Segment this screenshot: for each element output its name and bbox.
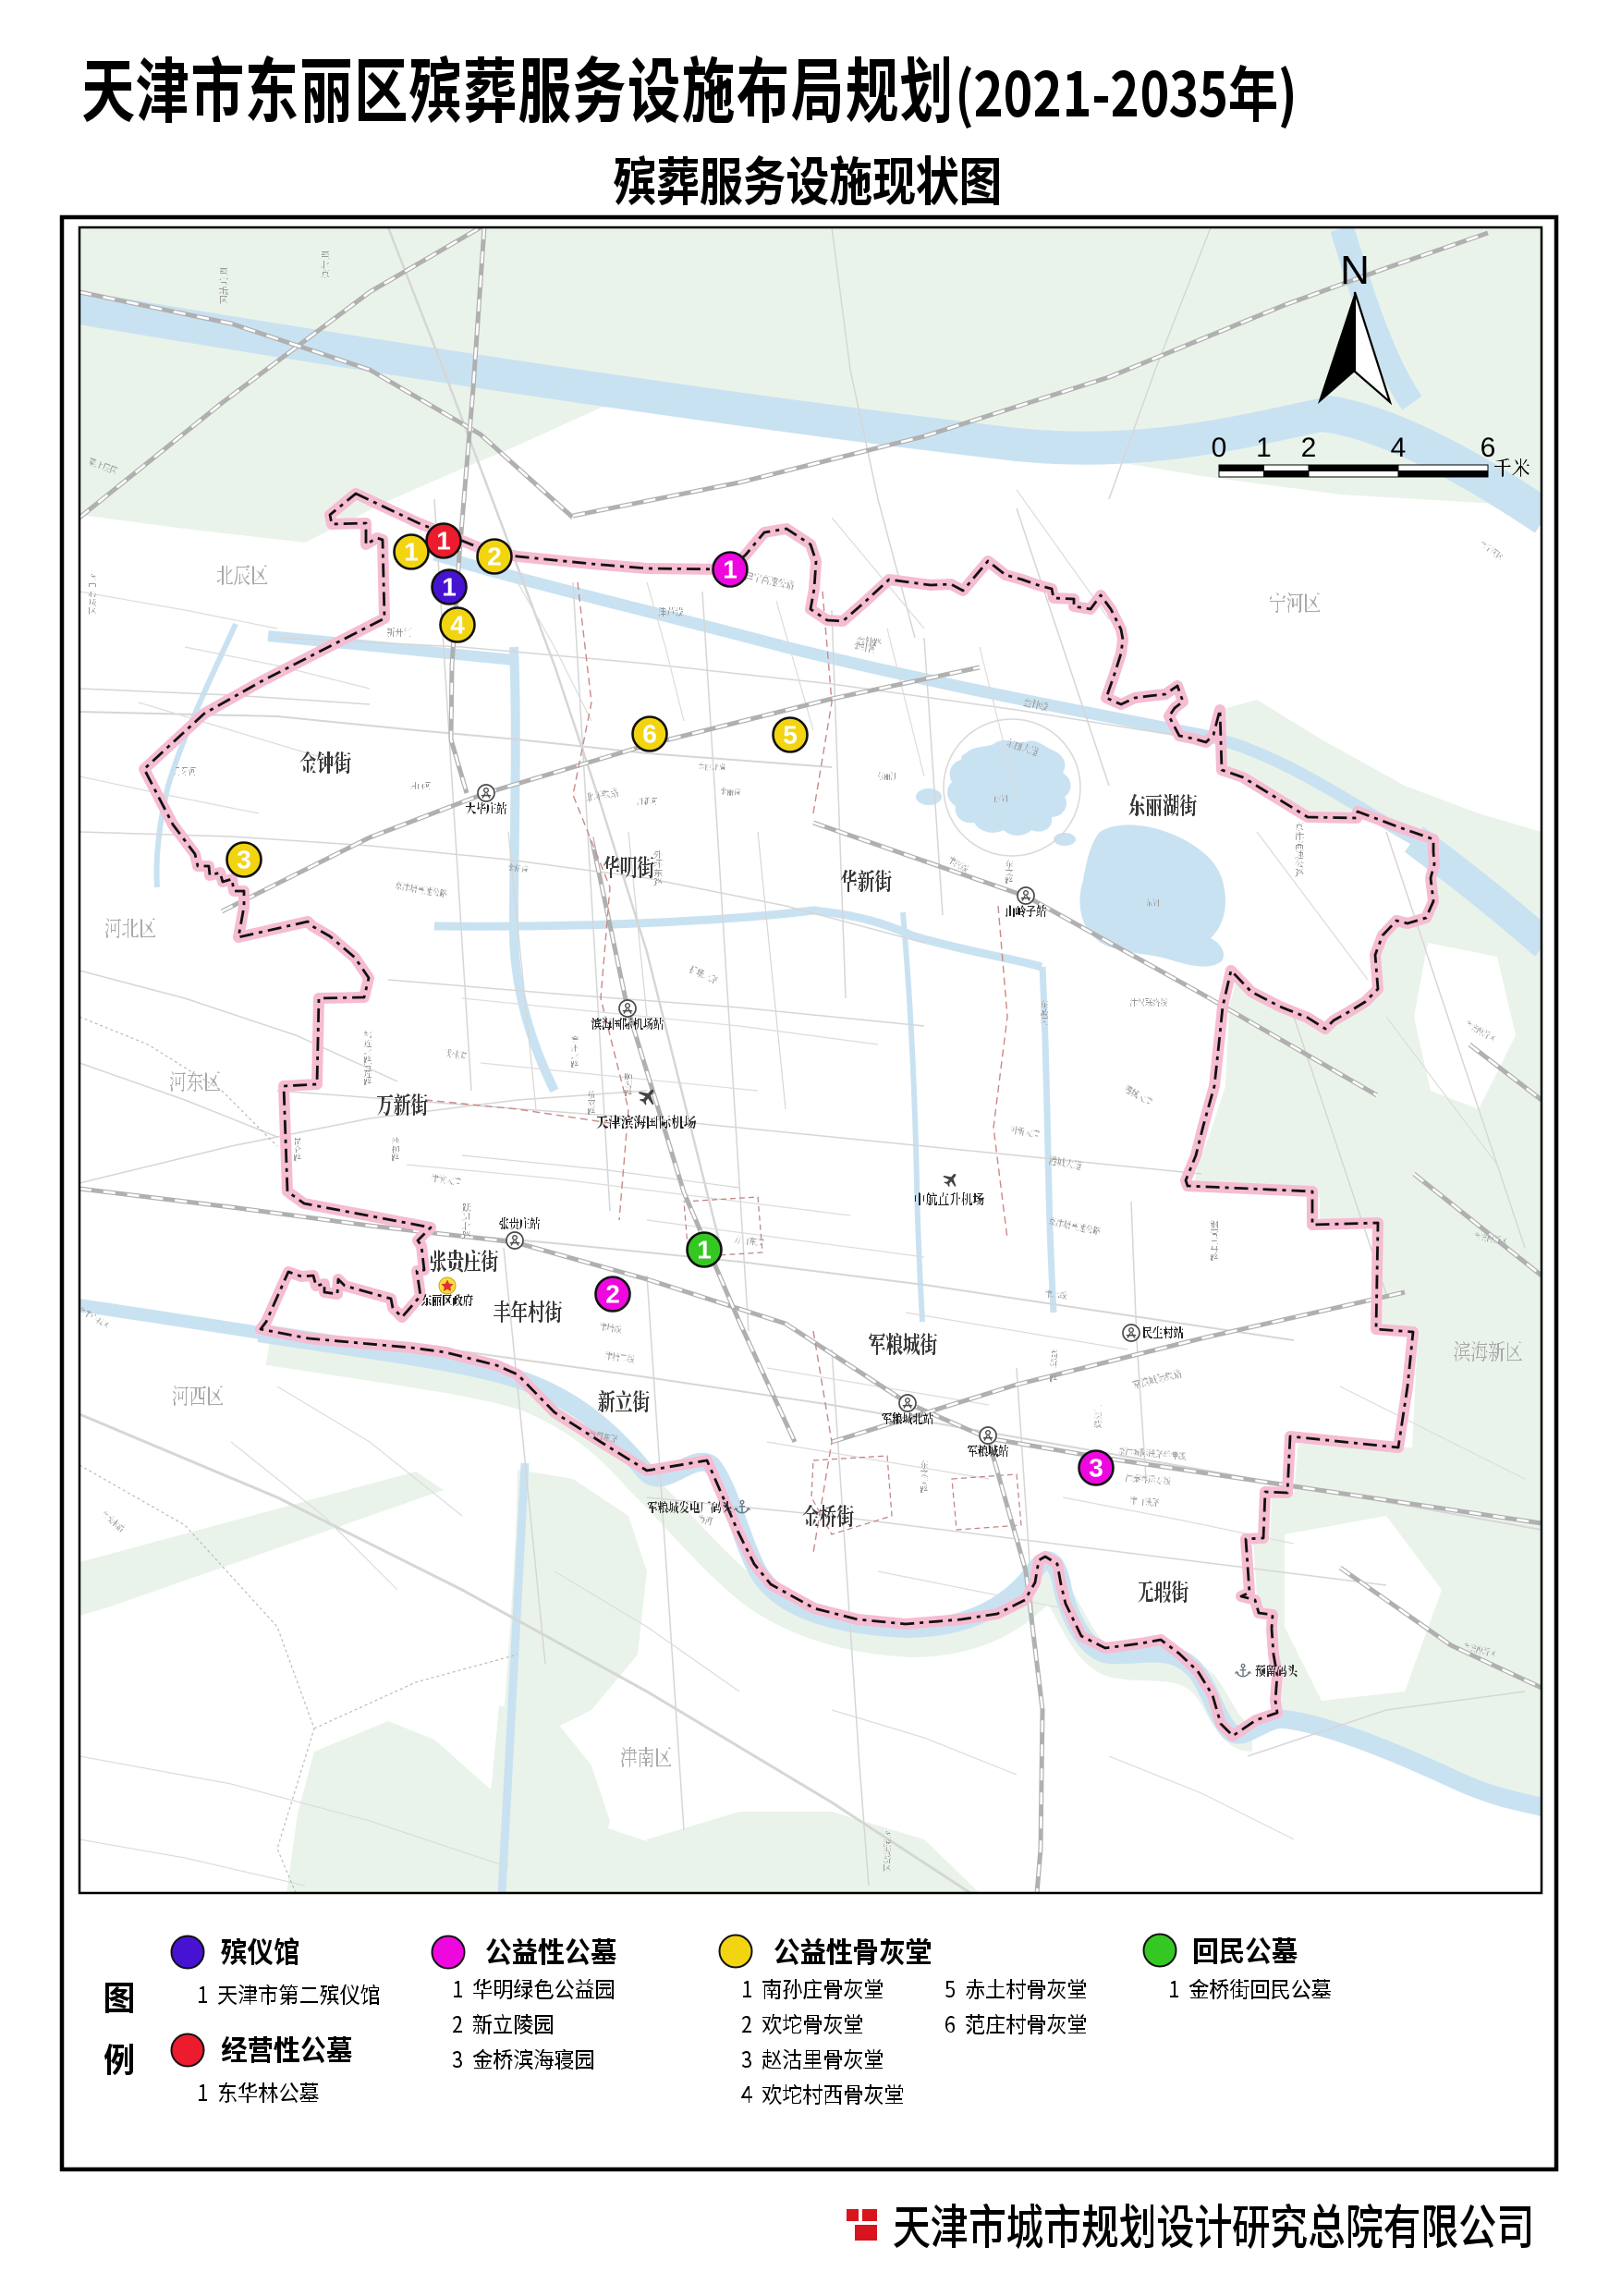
- svg-text:1: 1: [436, 527, 451, 556]
- svg-text:1: 1: [697, 1236, 712, 1264]
- svg-text:2: 2: [487, 543, 502, 571]
- svg-text:6: 6: [642, 720, 657, 749]
- svg-text:4: 4: [1391, 433, 1407, 463]
- svg-text:6: 6: [1481, 433, 1496, 463]
- svg-text:1: 1: [442, 573, 457, 602]
- svg-text:1: 1: [723, 556, 737, 584]
- svg-text:1: 1: [404, 538, 419, 567]
- svg-text:3: 3: [1089, 1454, 1103, 1483]
- svg-text:N: N: [1340, 248, 1370, 293]
- svg-text:2: 2: [1301, 433, 1317, 463]
- svg-text:4: 4: [450, 611, 465, 640]
- svg-text:1: 1: [1256, 433, 1272, 463]
- svg-text:2: 2: [605, 1280, 620, 1309]
- svg-text:0: 0: [1212, 433, 1227, 463]
- svg-text:5: 5: [783, 721, 798, 750]
- svg-text:3: 3: [237, 846, 251, 874]
